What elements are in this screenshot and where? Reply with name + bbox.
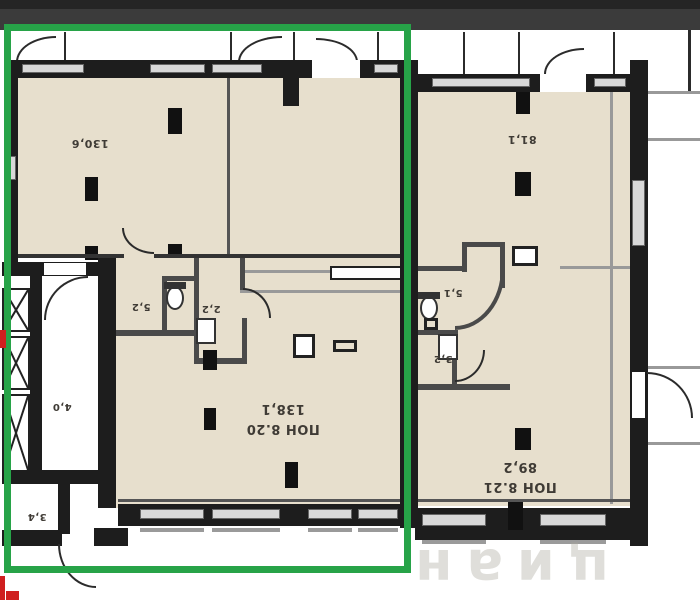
column [515, 428, 531, 450]
toilet-icon [420, 296, 438, 320]
partition [462, 242, 505, 247]
room-area-label: 89,2 [464, 457, 576, 477]
door-arc [544, 48, 584, 74]
partition [418, 384, 510, 390]
red-marker [6, 591, 19, 600]
top-bar-shadow [0, 0, 700, 9]
balcony-line [648, 91, 700, 94]
room-area-label: 3,2 [424, 346, 462, 364]
vent-fixture [424, 318, 438, 330]
balcony-divider [463, 32, 465, 74]
window [432, 78, 530, 87]
ceiling-fixture [512, 246, 538, 266]
window [632, 180, 645, 246]
door-opening [540, 74, 586, 92]
column [516, 92, 530, 114]
partition-line [560, 266, 630, 269]
door-arc [647, 372, 693, 418]
column [515, 172, 531, 196]
balcony-divider [613, 32, 615, 74]
selection-box[interactable] [4, 24, 411, 573]
window [594, 78, 626, 87]
red-marker [0, 576, 5, 600]
balcony-line [648, 366, 700, 369]
balcony-divider [518, 32, 520, 74]
door-opening [632, 372, 645, 418]
balcony-line [648, 138, 700, 141]
room-area-label: 5,1 [434, 280, 472, 298]
room-area-label: 81,1 [492, 124, 552, 146]
partition-line [418, 499, 630, 502]
partition-line [610, 92, 613, 504]
room-name-label: ПОН 8.21 [464, 477, 576, 497]
room-title-block: ПОН 8.21 89,2 [464, 448, 576, 496]
floorplan-canvas: 130,6 81,1 5,2 2,2 4,0 3,4 5,1 3,2 ПОН 8… [0, 0, 700, 600]
red-marker [0, 330, 6, 348]
balcony-line [648, 442, 700, 445]
balcony-divider [688, 30, 691, 92]
wall [630, 60, 648, 546]
